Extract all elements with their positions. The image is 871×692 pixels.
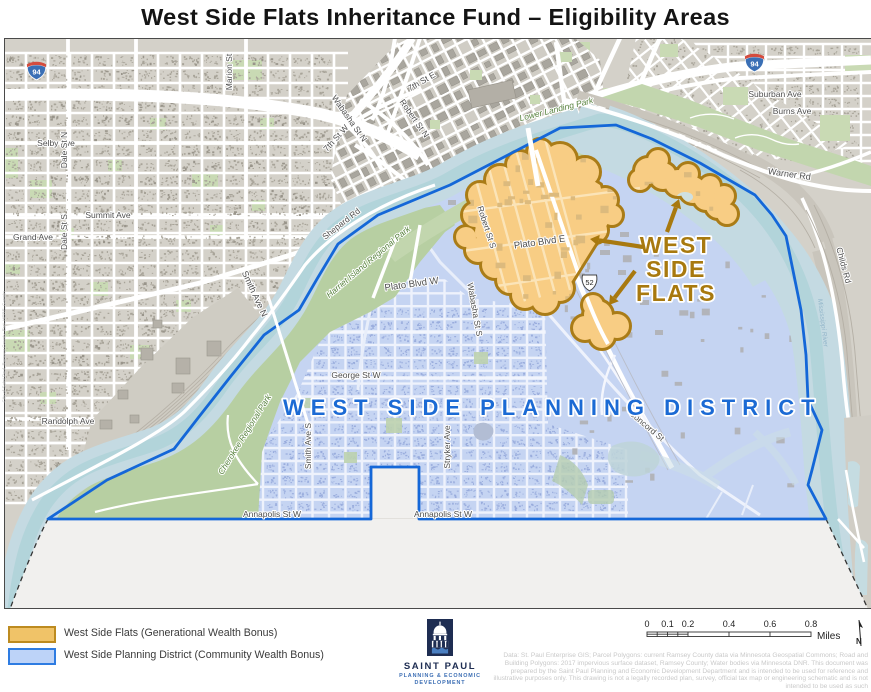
svg-text:WEST SIDE PLANNING DISTRICT: WEST SIDE PLANNING DISTRICT (283, 395, 822, 420)
svg-text:Dale St N: Dale St N (59, 132, 69, 168)
svg-text:Dale St S: Dale St S (59, 214, 69, 250)
svg-text:George St W: George St W (331, 370, 380, 380)
svg-text:Burns Ave: Burns Ave (773, 106, 812, 116)
svg-text:Miles: Miles (817, 631, 840, 642)
svg-text:WEST: WEST (640, 232, 712, 258)
svg-text:Randolph Ave: Randolph Ave (42, 416, 95, 426)
svg-text:0.6: 0.6 (764, 619, 777, 629)
svg-text:Summit Ave: Summit Ave (85, 210, 130, 220)
svg-text:FLATS: FLATS (636, 280, 716, 306)
svg-text:Marion St: Marion St (224, 53, 234, 90)
svg-text:N: N (856, 637, 862, 646)
svg-text:0.8: 0.8 (805, 619, 818, 629)
svg-text:Selby Ave: Selby Ave (37, 138, 75, 148)
svg-text:0.2: 0.2 (682, 619, 695, 629)
svg-text:0.4: 0.4 (723, 619, 736, 629)
svg-text:SIDE: SIDE (646, 256, 706, 282)
svg-text:0: 0 (644, 619, 649, 629)
svg-text:Smith Ave S: Smith Ave S (303, 423, 313, 469)
svg-text:Annapolis St W: Annapolis St W (414, 509, 472, 519)
svg-text:94: 94 (750, 59, 759, 68)
svg-text:94: 94 (32, 67, 41, 76)
svg-text:52: 52 (585, 278, 593, 287)
svg-text:Grand Ave: Grand Ave (13, 232, 53, 242)
svg-text:0.1: 0.1 (661, 619, 674, 629)
svg-text:Annapolis St W: Annapolis St W (243, 509, 301, 519)
svg-text:Stryker Ave: Stryker Ave (442, 425, 452, 469)
svg-text:Suburban Ave: Suburban Ave (748, 89, 802, 99)
